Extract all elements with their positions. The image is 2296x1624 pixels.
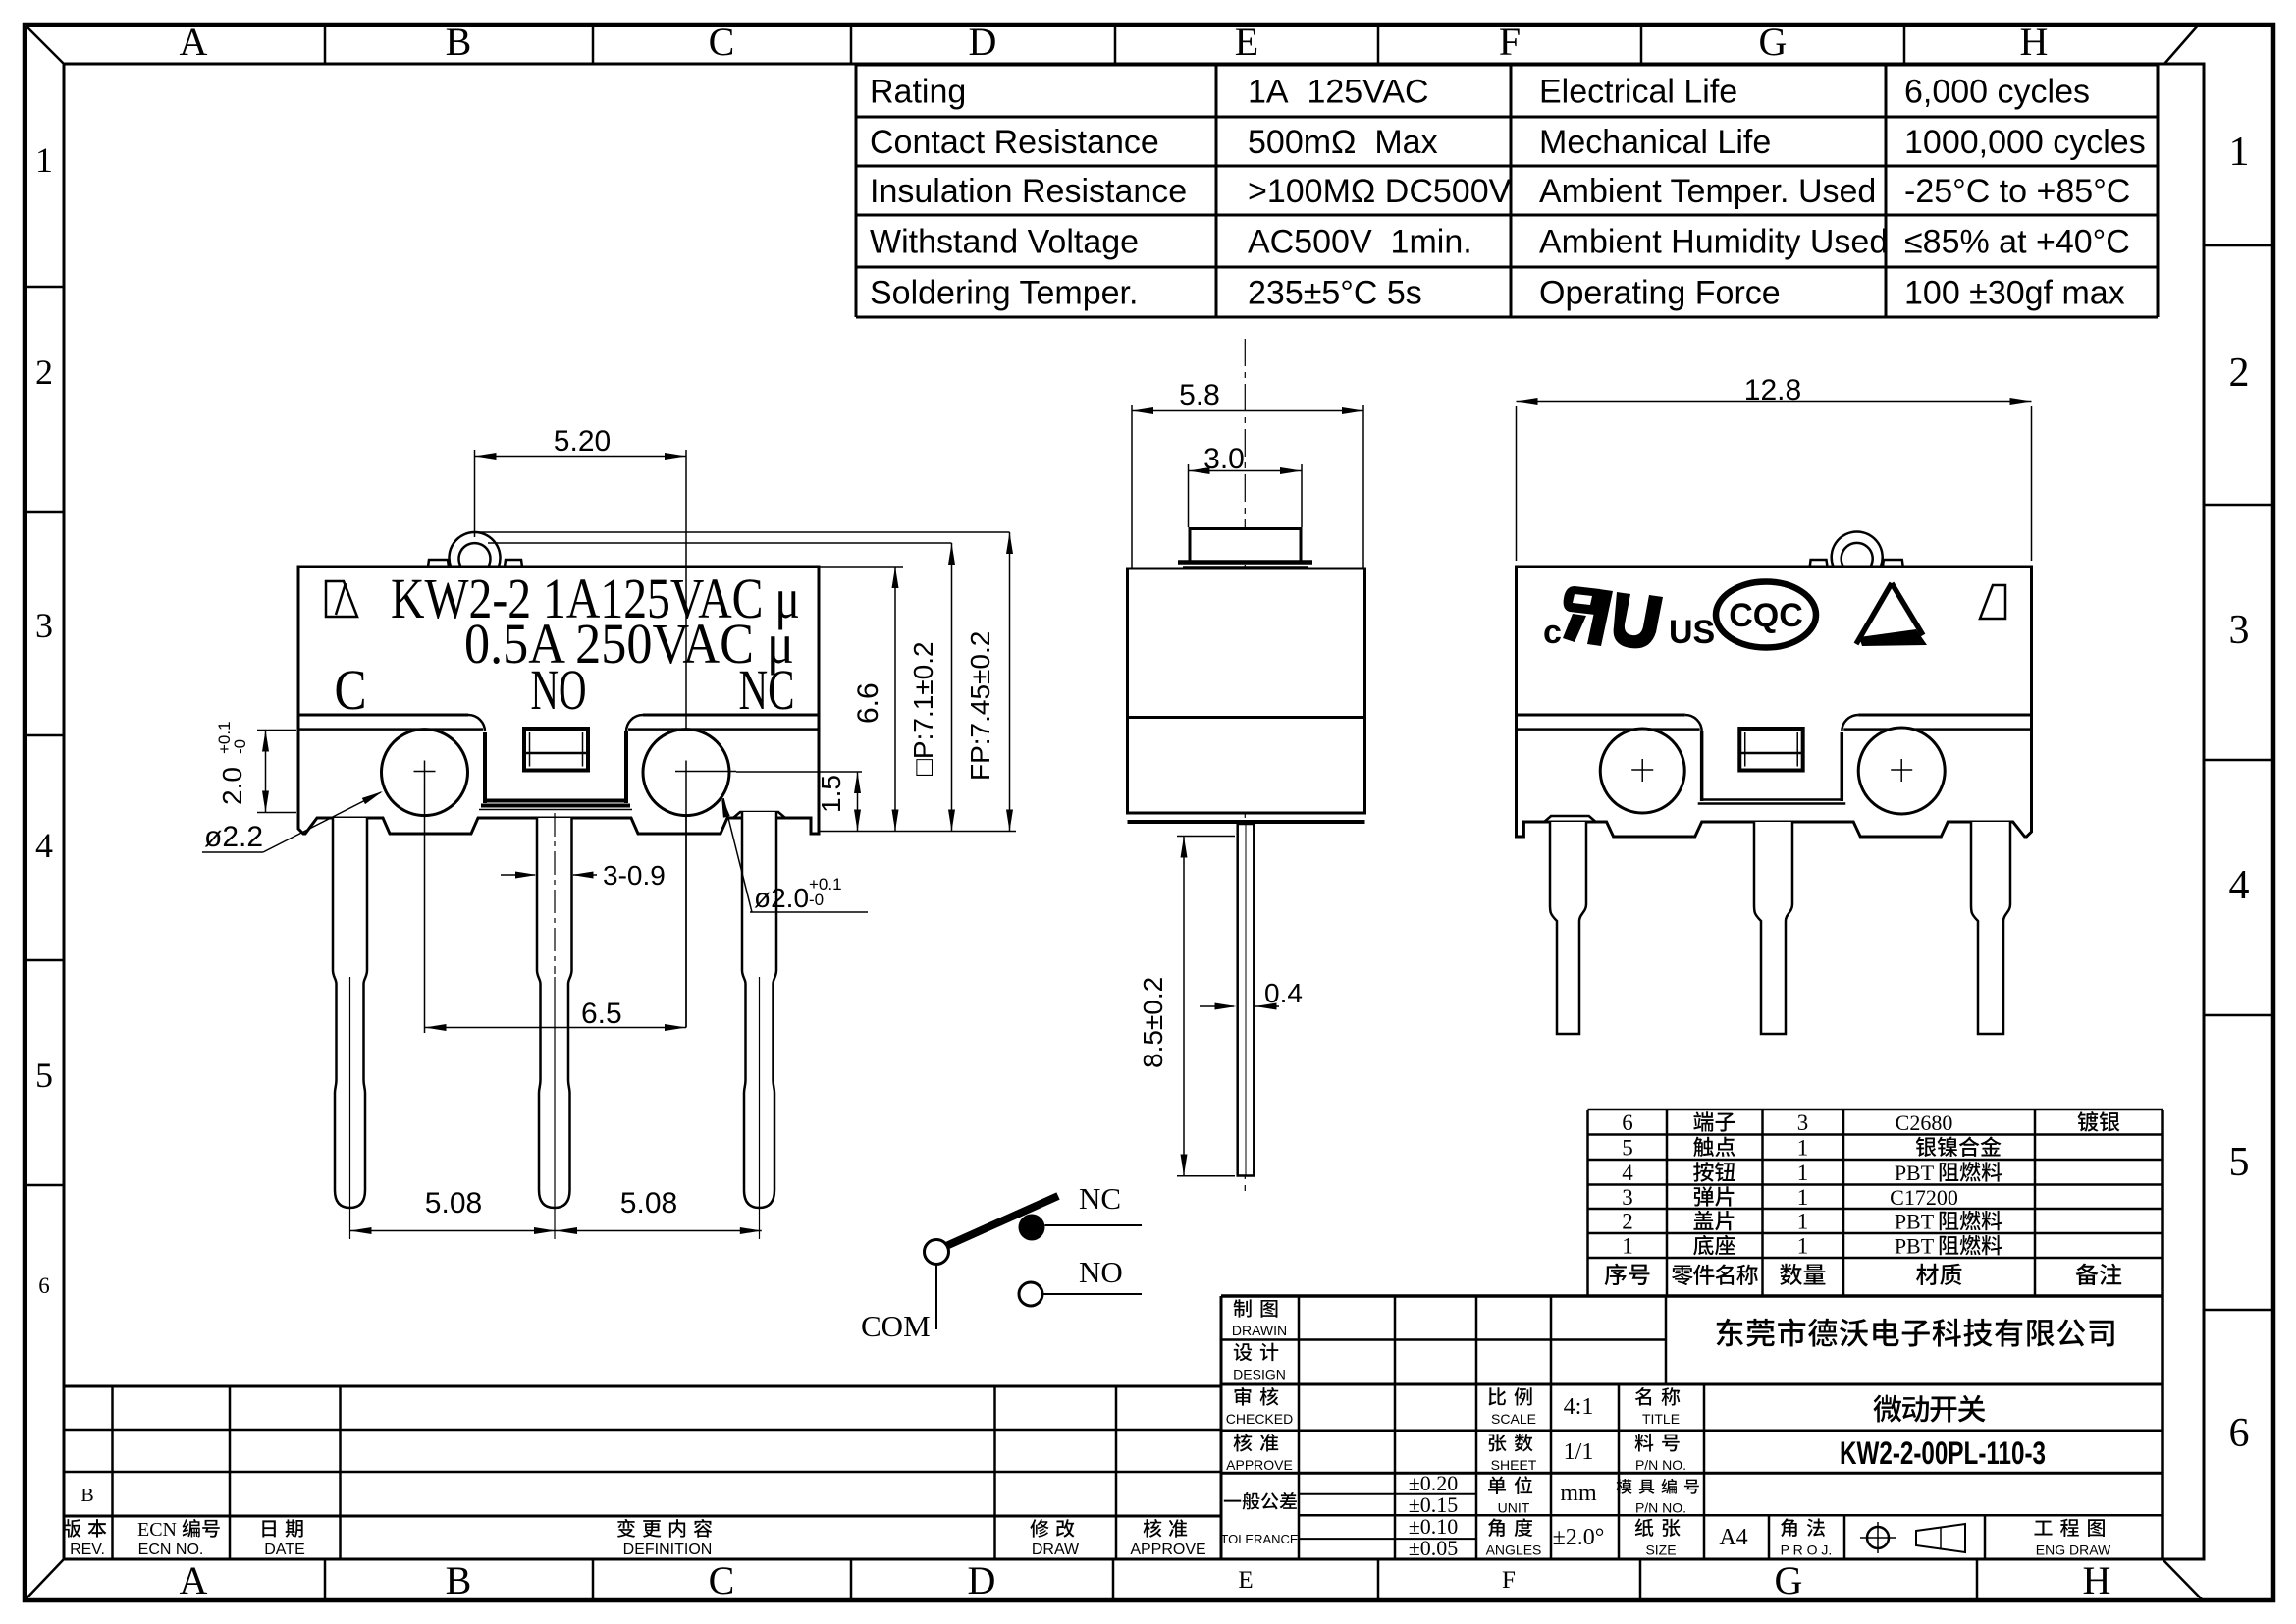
- svg-text:B: B: [446, 20, 472, 64]
- svg-text:REV.: REV.: [70, 1542, 105, 1558]
- svg-text:6.6: 6.6: [852, 682, 884, 724]
- svg-text:CQC: CQC: [1729, 597, 1803, 634]
- svg-text:F: F: [1499, 20, 1521, 64]
- svg-text:1: 1: [1797, 1185, 1809, 1210]
- svg-text:UNIT: UNIT: [1498, 1499, 1530, 1515]
- svg-text:A4: A4: [1719, 1525, 1747, 1550]
- svg-text:G: G: [1775, 1558, 1803, 1602]
- svg-text:P/N NO.: P/N NO.: [1635, 1457, 1686, 1473]
- svg-text:5.08: 5.08: [620, 1187, 677, 1219]
- svg-text:NC: NC: [1079, 1181, 1121, 1216]
- svg-text:APPROVE: APPROVE: [1226, 1457, 1293, 1473]
- svg-text:B: B: [80, 1485, 93, 1506]
- svg-text:DEFINITION: DEFINITION: [623, 1542, 713, 1558]
- svg-text:1: 1: [1797, 1161, 1809, 1185]
- svg-text:TOLERANCE: TOLERANCE: [1220, 1532, 1299, 1546]
- svg-text:5: 5: [2229, 1140, 2250, 1185]
- svg-text:NO: NO: [531, 658, 587, 722]
- svg-text:US: US: [1669, 614, 1715, 651]
- svg-text:6,000 cycles: 6,000 cycles: [1904, 74, 2090, 111]
- svg-text:E: E: [1238, 1567, 1253, 1594]
- svg-text:A: A: [180, 1558, 208, 1602]
- svg-text:SIZE: SIZE: [1645, 1542, 1676, 1557]
- svg-text:1: 1: [1622, 1234, 1633, 1259]
- svg-text:C: C: [709, 1558, 735, 1602]
- svg-text:6: 6: [1622, 1110, 1633, 1135]
- svg-text:C17200: C17200: [1890, 1185, 1958, 1210]
- svg-text:AC500V 1min.: AC500V 1min.: [1248, 224, 1472, 261]
- svg-text:C: C: [335, 658, 367, 722]
- svg-text:1: 1: [2229, 130, 2250, 175]
- svg-text:2: 2: [2229, 351, 2250, 396]
- svg-text:Soldering Temper.: Soldering Temper.: [870, 275, 1138, 312]
- svg-text:8.5±0.2: 8.5±0.2: [1138, 977, 1168, 1068]
- svg-text:ø2.2: ø2.2: [204, 821, 263, 853]
- svg-text:DRAW: DRAW: [1032, 1542, 1080, 1558]
- svg-text:12.8: 12.8: [1744, 374, 1801, 406]
- svg-text:3-0.9: 3-0.9: [603, 860, 666, 891]
- svg-text:Contact Resistance: Contact Resistance: [870, 124, 1159, 161]
- svg-text:2: 2: [1622, 1210, 1633, 1234]
- svg-text:ECN: ECN: [137, 1519, 177, 1541]
- svg-text:3: 3: [2229, 608, 2250, 653]
- svg-text:PBT: PBT: [1895, 1210, 1935, 1234]
- svg-text:>100MΩ DC500V: >100MΩ DC500V: [1248, 173, 1512, 210]
- svg-text:FP:7.45±0.2: FP:7.45±0.2: [965, 631, 995, 781]
- svg-text:A: A: [180, 20, 208, 64]
- svg-text:3: 3: [1622, 1185, 1633, 1210]
- svg-text:Withstand Voltage: Withstand Voltage: [870, 224, 1139, 261]
- svg-text:E: E: [1235, 20, 1258, 64]
- svg-text:4:1: 4:1: [1564, 1394, 1594, 1420]
- svg-text:Electrical Life: Electrical Life: [1539, 74, 1737, 111]
- svg-text:APPROVE: APPROVE: [1130, 1542, 1205, 1558]
- svg-text:C2680: C2680: [1896, 1110, 1953, 1135]
- svg-text:1000,000 cycles: 1000,000 cycles: [1904, 124, 2146, 161]
- svg-text:PBT: PBT: [1895, 1234, 1935, 1259]
- svg-text:Operating Force: Operating Force: [1539, 275, 1781, 312]
- svg-text:5: 5: [35, 1056, 53, 1095]
- svg-text:NC: NC: [739, 658, 795, 722]
- svg-text:P/N NO.: P/N NO.: [1635, 1499, 1686, 1515]
- svg-text:mm: mm: [1560, 1481, 1597, 1506]
- svg-text:Ambient Temper. Used: Ambient Temper. Used: [1539, 173, 1876, 210]
- svg-text:3.0: 3.0: [1203, 443, 1245, 475]
- svg-text:6: 6: [38, 1273, 50, 1298]
- svg-text:235±5°C 5s: 235±5°C 5s: [1248, 275, 1422, 312]
- svg-text:ø2.0: ø2.0: [754, 883, 809, 913]
- svg-text:±2.0°: ±2.0°: [1553, 1525, 1605, 1550]
- svg-text:1: 1: [1797, 1135, 1809, 1160]
- svg-text:D: D: [969, 20, 997, 64]
- svg-text:P R O J.: P R O J.: [1781, 1542, 1833, 1557]
- svg-text:ECN NO.: ECN NO.: [138, 1542, 204, 1558]
- svg-text:6: 6: [2229, 1411, 2250, 1456]
- svg-text:KW2-2-00PL-110-3: KW2-2-00PL-110-3: [1840, 1435, 2046, 1471]
- svg-text:1: 1: [35, 140, 53, 180]
- svg-text:SCALE: SCALE: [1491, 1411, 1536, 1427]
- svg-text:100 ±30gf max: 100 ±30gf max: [1904, 275, 2125, 312]
- svg-text:-25°C to +85°C: -25°C to +85°C: [1904, 173, 2130, 210]
- svg-text:Ambient Humidity Used: Ambient Humidity Used: [1539, 224, 1888, 261]
- svg-text:4: 4: [2229, 863, 2250, 908]
- svg-text:PBT: PBT: [1895, 1161, 1935, 1185]
- svg-text:H: H: [2020, 20, 2049, 64]
- svg-text:1.5: 1.5: [816, 775, 846, 813]
- svg-text:±0.05: ±0.05: [1409, 1536, 1459, 1560]
- svg-text:COM: COM: [861, 1309, 931, 1343]
- svg-text:DATE: DATE: [264, 1542, 304, 1558]
- svg-text:NO: NO: [1079, 1255, 1123, 1289]
- svg-text:D: D: [968, 1558, 996, 1602]
- svg-text:4: 4: [35, 826, 53, 865]
- svg-text:5.08: 5.08: [425, 1187, 482, 1219]
- svg-text:B: B: [446, 1558, 472, 1602]
- svg-text:Insulation Resistance: Insulation Resistance: [870, 173, 1187, 210]
- svg-text:4: 4: [1622, 1161, 1633, 1185]
- svg-text:SHEET: SHEET: [1491, 1457, 1537, 1473]
- svg-text:CHECKED: CHECKED: [1226, 1411, 1293, 1427]
- svg-text:1: 1: [1797, 1234, 1809, 1259]
- svg-text:1A 125VAC: 1A 125VAC: [1248, 74, 1429, 111]
- svg-text:Mechanical Life: Mechanical Life: [1539, 124, 1771, 161]
- svg-text:6.5: 6.5: [581, 998, 622, 1030]
- svg-text:DRAWIN: DRAWIN: [1232, 1323, 1287, 1338]
- svg-text:□P:7.1±0.2: □P:7.1±0.2: [908, 641, 938, 776]
- svg-text:5.20: 5.20: [554, 425, 611, 458]
- svg-text:-0: -0: [231, 739, 249, 754]
- svg-text:2.0: 2.0: [217, 767, 247, 805]
- svg-text:ENG DRAW: ENG DRAW: [2036, 1542, 2111, 1557]
- svg-text:c: c: [1543, 614, 1562, 651]
- svg-text:5.8: 5.8: [1179, 379, 1220, 411]
- svg-text:G: G: [1759, 20, 1788, 64]
- svg-text:5: 5: [1622, 1135, 1633, 1160]
- svg-text:Rating: Rating: [870, 74, 966, 111]
- svg-text:-0: -0: [809, 891, 824, 909]
- svg-text:1: 1: [1797, 1210, 1809, 1234]
- svg-text:1/1: 1/1: [1564, 1439, 1594, 1465]
- svg-text:0.4: 0.4: [1264, 978, 1303, 1008]
- svg-text:3: 3: [35, 606, 53, 645]
- svg-text:F: F: [1502, 1567, 1516, 1594]
- svg-text:500mΩ Max: 500mΩ Max: [1248, 124, 1438, 161]
- svg-text:C: C: [709, 20, 735, 64]
- svg-text:DESIGN: DESIGN: [1233, 1367, 1286, 1382]
- svg-text:ANGLES: ANGLES: [1486, 1542, 1542, 1557]
- svg-text:2: 2: [35, 352, 53, 392]
- svg-text:3: 3: [1797, 1110, 1809, 1135]
- svg-text:TITLE: TITLE: [1642, 1411, 1680, 1427]
- svg-text:H: H: [2083, 1558, 2111, 1602]
- svg-text:≤85% at +40°C: ≤85% at +40°C: [1904, 224, 2130, 261]
